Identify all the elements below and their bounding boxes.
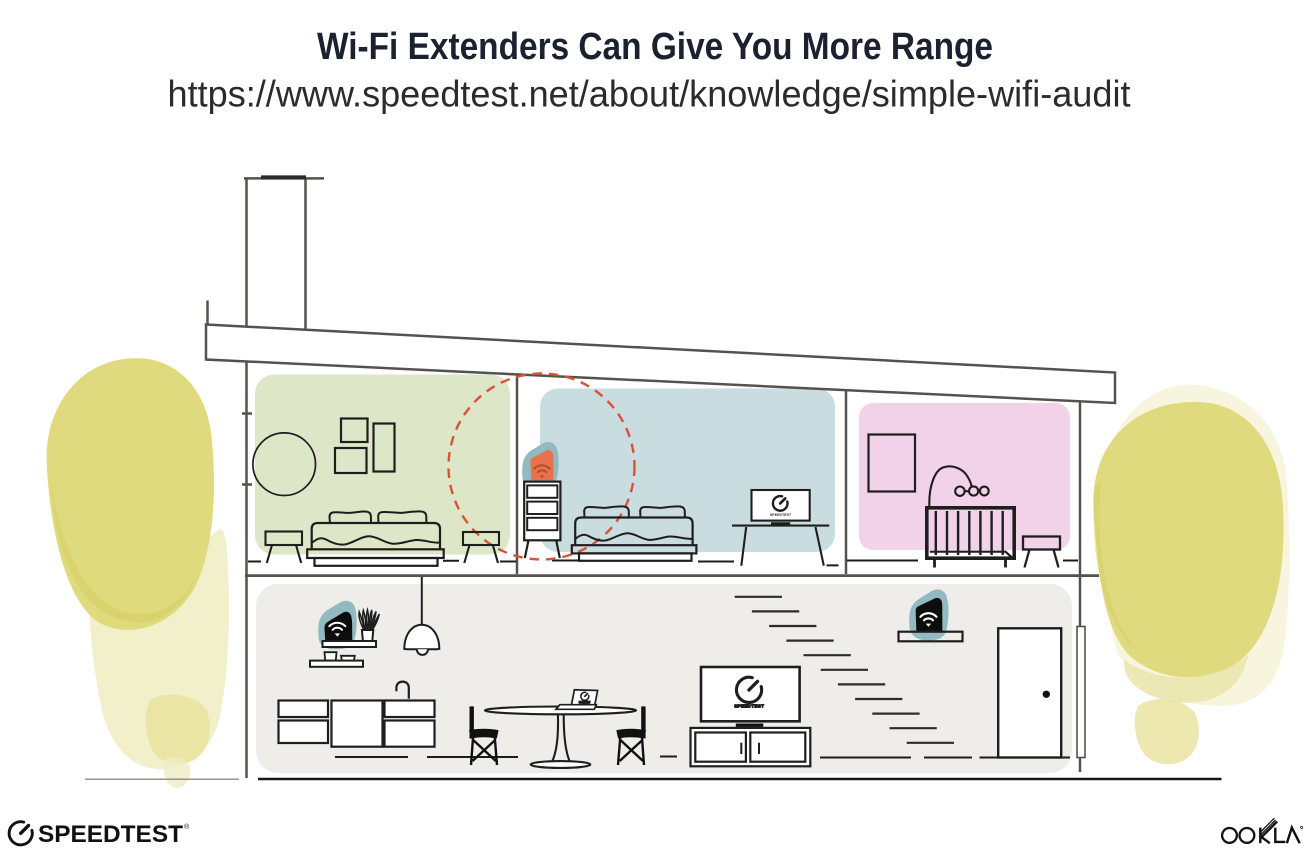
- svg-text:https://www.speedtest.net/abou: https://www.speedtest.net/about/knowledg…: [168, 74, 1132, 115]
- svg-text:®: ®: [184, 823, 190, 831]
- svg-text:SPEEDTEST: SPEEDTEST: [38, 821, 183, 848]
- svg-text:SPEEDTEST: SPEEDTEST: [770, 513, 791, 517]
- svg-text:SPEEDTEST: SPEEDTEST: [734, 704, 764, 709]
- svg-text:Wi-Fi Extenders Can Give You M: Wi-Fi Extenders Can Give You More Range: [317, 26, 993, 68]
- svg-text:SPEEDTEST: SPEEDTEST: [579, 702, 591, 704]
